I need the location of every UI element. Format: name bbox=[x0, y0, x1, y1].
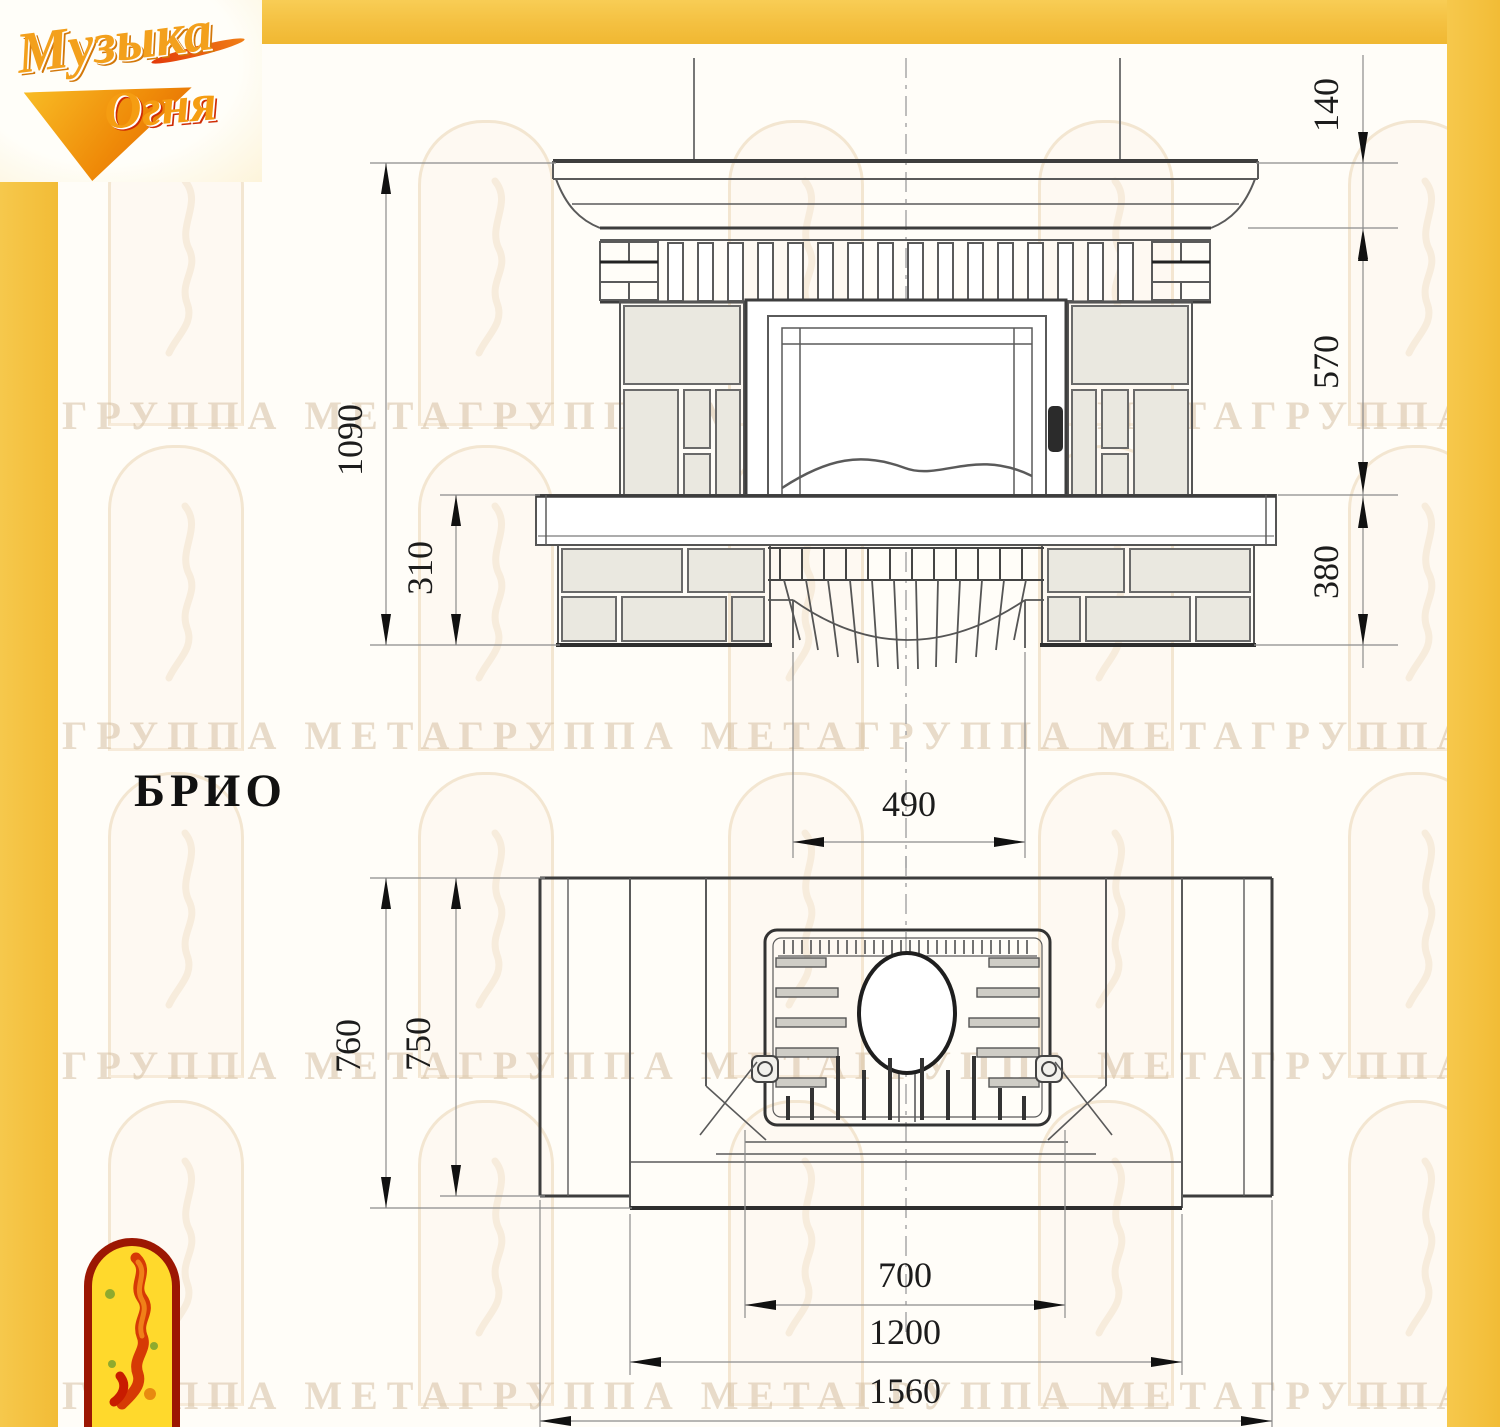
page: ГРУППА МЕТАГРУППА МЕТАГРУППА МЕТАГРУППА … bbox=[0, 0, 1500, 1427]
dim-label-1200: 1200 bbox=[869, 1312, 941, 1352]
dim-total-width: 1560 bbox=[540, 1371, 1272, 1426]
flue-opening bbox=[859, 953, 955, 1073]
dim-label-760: 760 bbox=[328, 1019, 368, 1073]
door-handle bbox=[1048, 406, 1063, 452]
front-elevation bbox=[536, 58, 1276, 868]
baluster-slats bbox=[668, 243, 1133, 301]
dim-total-height: 1090 bbox=[330, 163, 391, 645]
dim-lower-height: 380 bbox=[1306, 495, 1368, 668]
dim-body-depth: 750 bbox=[398, 878, 461, 1196]
flame-figure bbox=[92, 1246, 172, 1420]
dim-label-700: 700 bbox=[878, 1255, 932, 1295]
dim-label-1560: 1560 bbox=[869, 1371, 941, 1411]
dim-label-310: 310 bbox=[400, 541, 440, 595]
left-column-tiles bbox=[620, 302, 744, 500]
logo-word-ognya: Огня bbox=[102, 73, 219, 142]
dim-niche-width: 490 bbox=[793, 784, 1025, 847]
chimney-stub-lines bbox=[694, 58, 1120, 162]
fireplace-technical-drawing: 1090 310 140 570 bbox=[0, 0, 1500, 1427]
dim-label-570: 570 bbox=[1306, 335, 1346, 389]
plan-firebox bbox=[700, 930, 1112, 1154]
dim-label-140: 140 bbox=[1306, 78, 1346, 132]
logo-word-muzyka: Музыка bbox=[13, 0, 216, 87]
dim-firebox-width: 700 bbox=[745, 1255, 1065, 1310]
dim-body-width: 1200 bbox=[630, 1312, 1182, 1367]
right-column-tiles bbox=[1068, 302, 1192, 500]
base-left-block bbox=[556, 545, 772, 645]
hearth-slab bbox=[536, 495, 1276, 545]
dim-label-490: 490 bbox=[882, 784, 936, 824]
dim-label-380: 380 bbox=[1306, 545, 1346, 599]
dim-middle-height: 570 bbox=[1306, 228, 1368, 495]
dim-total-depth: 760 bbox=[328, 878, 391, 1208]
dim-label-750: 750 bbox=[398, 1017, 438, 1071]
dim-base-height: 310 bbox=[400, 495, 461, 645]
flame-emblem bbox=[84, 1238, 180, 1427]
frame-right-bar bbox=[1447, 0, 1500, 1427]
model-title: БРИО bbox=[134, 765, 287, 817]
brand-logo: Музыка Огня bbox=[0, 0, 262, 182]
dim-label-1090: 1090 bbox=[330, 404, 370, 476]
base-right-block bbox=[1040, 545, 1256, 645]
frame-left-bar bbox=[0, 0, 58, 1427]
